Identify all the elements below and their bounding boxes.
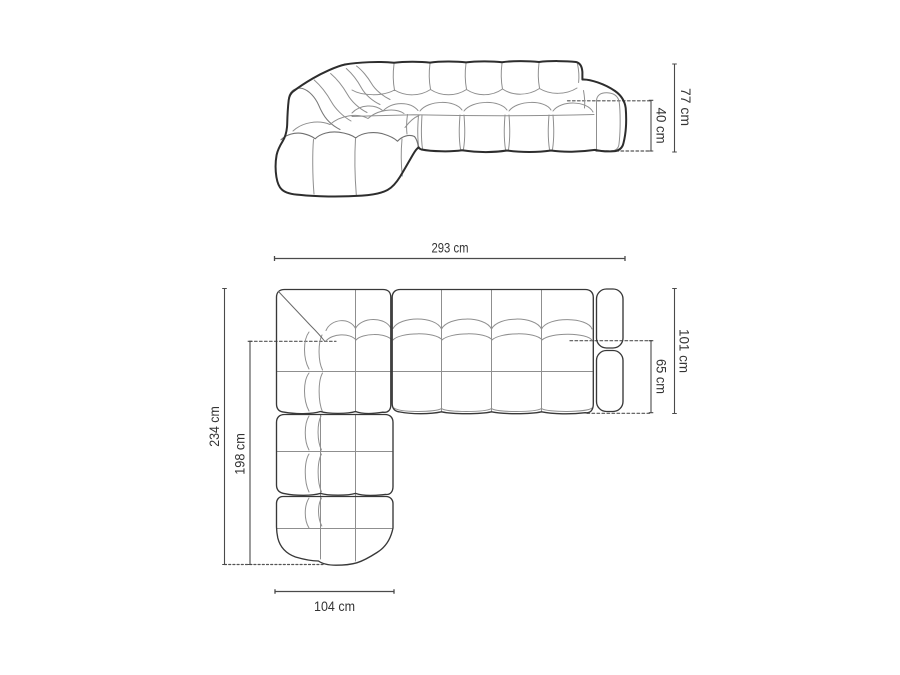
svg-text:77 cm: 77 cm [678,88,694,126]
svg-text:198 cm: 198 cm [231,433,247,475]
svg-text:101 cm: 101 cm [677,329,693,373]
svg-text:234 cm: 234 cm [206,406,222,447]
svg-text:104 cm: 104 cm [314,598,355,614]
svg-text:65 cm: 65 cm [654,359,670,394]
svg-text:40 cm: 40 cm [654,108,670,144]
svg-text:293 cm: 293 cm [432,240,469,256]
